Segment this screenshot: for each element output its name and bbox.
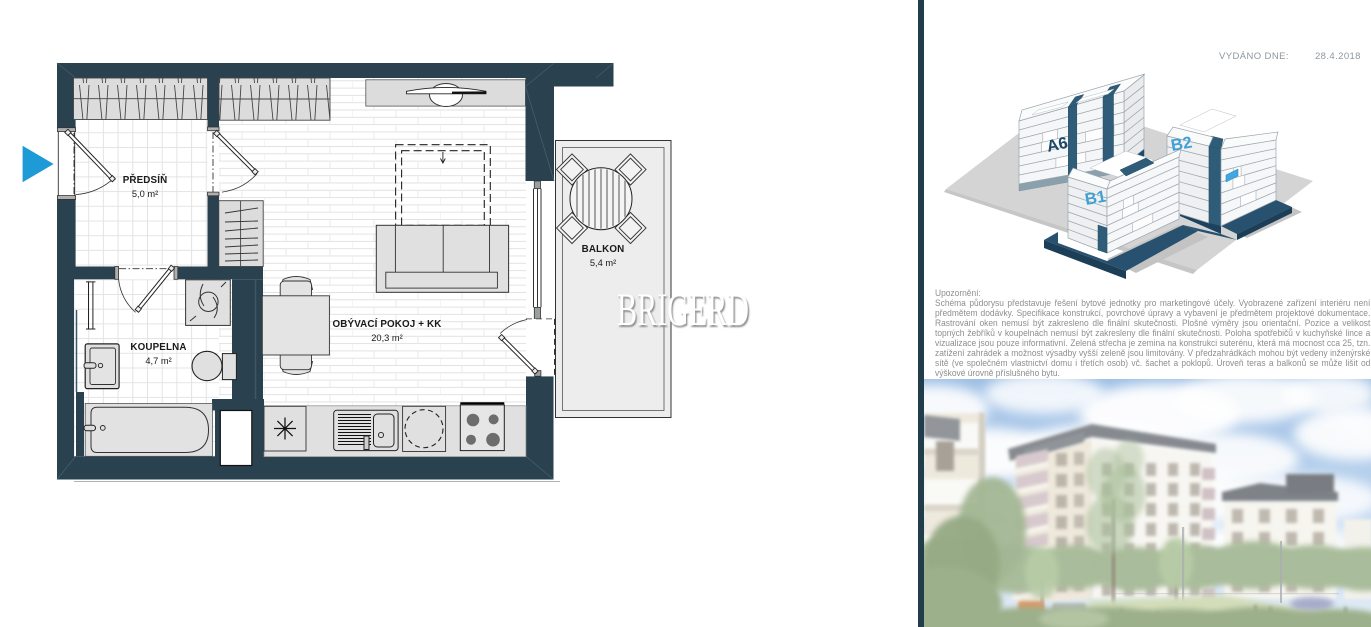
svg-text:B1: B1 [1084, 188, 1108, 209]
svg-text:B2: B2 [1170, 134, 1194, 155]
